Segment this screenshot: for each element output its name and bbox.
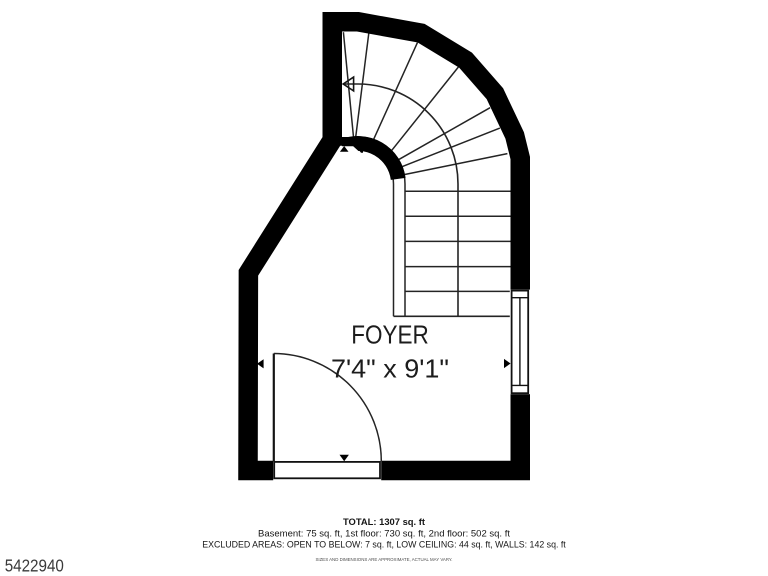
svg-text:EXCLUDED AREAS: OPEN TO BELOW:: EXCLUDED AREAS: OPEN TO BELOW: 7 sq. ft,… (202, 538, 566, 549)
svg-text:FOYER: FOYER (351, 320, 429, 350)
svg-text:TOTAL: 1307 sq. ft: TOTAL: 1307 sq. ft (343, 517, 425, 527)
svg-text:SIZES AND DIMENSIONS ARE APPRO: SIZES AND DIMENSIONS ARE APPROXIMATE, AC… (316, 557, 453, 563)
svg-text:5422940: 5422940 (5, 556, 64, 576)
svg-text:7'4" x 9'1": 7'4" x 9'1" (331, 354, 449, 384)
svg-text:Basement: 75 sq. ft, 1st floor: Basement: 75 sq. ft, 1st floor: 730 sq. … (258, 528, 510, 538)
